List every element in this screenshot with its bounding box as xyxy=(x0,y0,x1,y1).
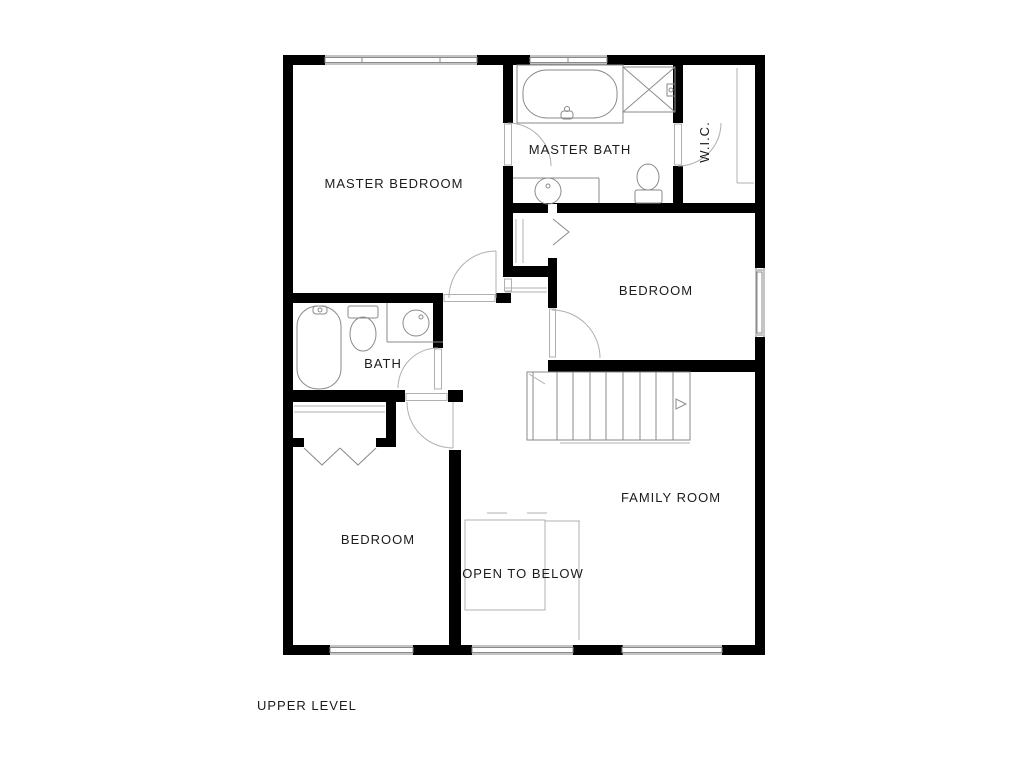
room-label-bedroom-left: BEDROOM xyxy=(341,532,415,547)
stair-direction-arrow-icon xyxy=(676,399,686,409)
window-icon xyxy=(530,56,607,64)
plan-level-label: UPPER LEVEL xyxy=(257,698,357,713)
window-icon xyxy=(325,56,477,64)
closet-shelf-icon xyxy=(737,68,754,183)
bathtub-icon xyxy=(297,306,341,389)
window-icon xyxy=(756,268,764,337)
room-label-bedroom-right: BEDROOM xyxy=(619,283,693,298)
exterior-walls xyxy=(283,55,765,655)
door-swing-arc-icon xyxy=(444,251,496,302)
room-label-master-bath: MASTER BATH xyxy=(529,142,632,157)
closet-opening xyxy=(505,279,512,291)
room-label-master-bedroom: MASTER BEDROOM xyxy=(325,176,464,191)
shower-icon xyxy=(623,67,675,112)
door-swing-arc-icon xyxy=(550,309,601,358)
room-label-open-to-below: OPEN TO BELOW xyxy=(462,566,584,581)
window-icon xyxy=(330,646,413,654)
hall-bath-fixtures xyxy=(297,303,443,389)
garden-tub-icon xyxy=(517,65,623,123)
door-swing-arc-icon xyxy=(406,394,453,449)
toilet-icon xyxy=(635,164,662,203)
bifold-closet-door-icon xyxy=(553,219,569,245)
room-label-wic: W.I.C. xyxy=(697,121,712,162)
closet-shelf-icon xyxy=(516,219,523,263)
window-icon xyxy=(622,646,722,654)
door-swing-arc-icon xyxy=(398,348,442,389)
interior-walls xyxy=(283,65,765,645)
floor-plan-page: MASTER BEDROOM MASTER BATH W.I.C. BEDROO… xyxy=(0,0,1023,768)
toilet-icon xyxy=(348,306,378,351)
sink-icon xyxy=(513,178,599,204)
floor-plan-canvas: MASTER BEDROOM MASTER BATH W.I.C. BEDROO… xyxy=(0,0,1023,768)
stairs-up-icon xyxy=(527,372,690,443)
window-icon xyxy=(472,646,573,654)
room-label-bath: BATH xyxy=(364,356,402,371)
bifold-closet-door-icon xyxy=(304,448,376,465)
closet-shelf-icon xyxy=(294,406,385,412)
room-label-family-room: FAMILY ROOM xyxy=(621,490,721,505)
